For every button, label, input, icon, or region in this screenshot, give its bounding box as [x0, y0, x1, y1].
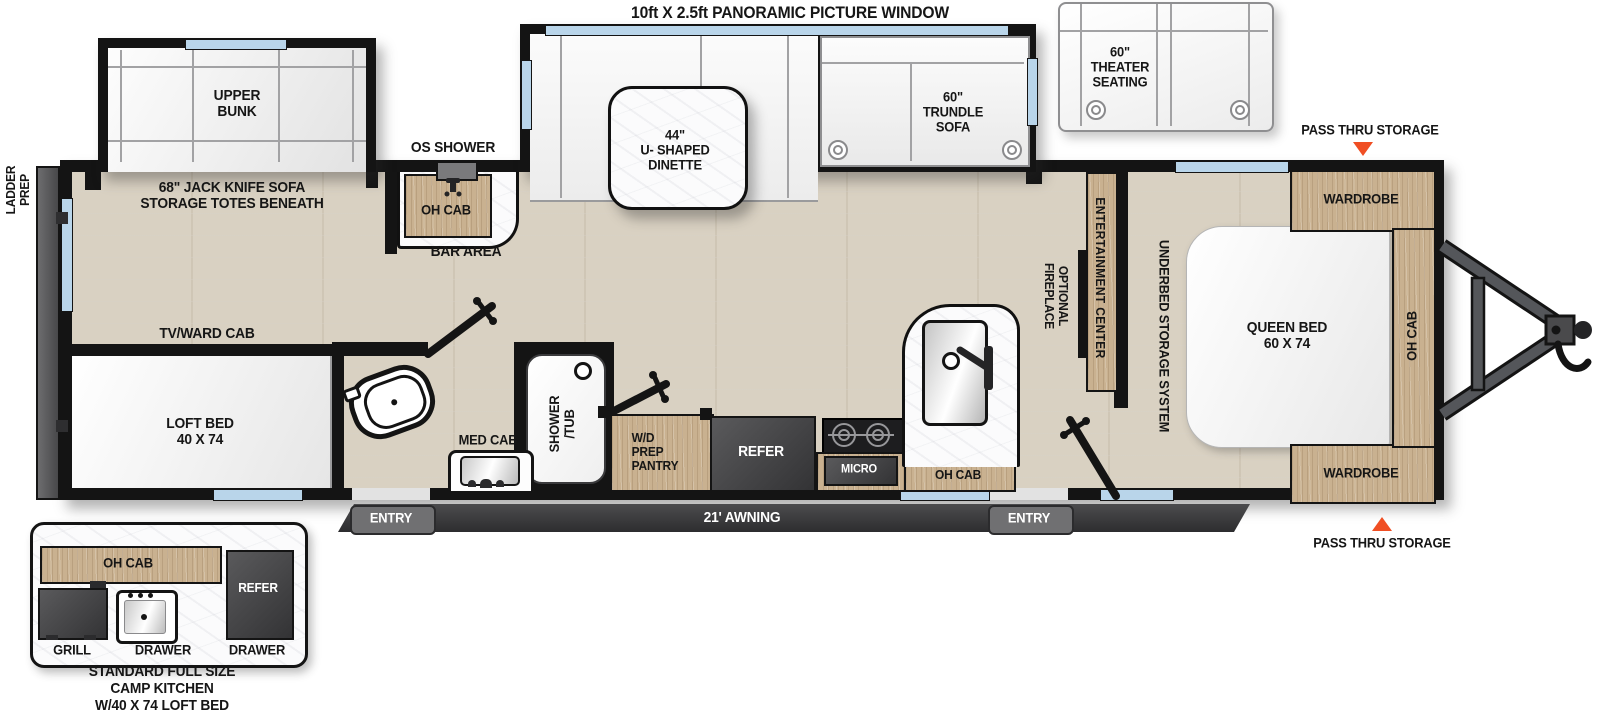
optional-fireplace-label: OPTIONAL FIREPLACE [1042, 263, 1070, 329]
camp-kitchen-oh-cab-label: OH CAB [103, 556, 153, 571]
bath-left-wall [330, 344, 344, 500]
pass-thru-top-label: PASS THRU STORAGE [1301, 123, 1438, 138]
hitch-icon [1442, 246, 1592, 414]
window-bunk-top [185, 39, 287, 50]
kitchen-sink-drain [942, 352, 960, 370]
window-bedroom-bottom [1100, 489, 1174, 501]
camp-kitchen-drawer1-label: DRAWER [135, 643, 191, 658]
shower-drain [574, 362, 592, 380]
loft-top-wall [72, 344, 334, 356]
trundle-grommet-left [828, 140, 848, 160]
trundle-grommet-right [1002, 140, 1022, 160]
theater-grommet-left [1086, 100, 1106, 120]
dinette-label: 44" U- SHAPED DINETTE [640, 128, 709, 173]
window-bedroom-top [1175, 161, 1289, 173]
trundle-sofa-label: 60" TRUNDLE SOFA [923, 90, 983, 135]
micro-label: MICRO [841, 463, 877, 476]
pass-thru-top-arrow-icon [1353, 142, 1373, 156]
wall-stub-2 [366, 172, 378, 188]
os-shower-label: OS SHOWER [411, 140, 495, 156]
bar-left-wall [385, 172, 397, 254]
kitchen-oh-cab-label: OH CAB [935, 468, 981, 482]
tv-ward-cab-label: TV/WARD CAB [159, 326, 254, 342]
window-slide-right [1027, 58, 1038, 126]
awning-label: 21' AWNING [704, 510, 781, 526]
upper-bunk-label: UPPER BUNK [214, 88, 261, 120]
bumper-bracket-top [56, 212, 68, 224]
entry-gap-left [352, 488, 430, 500]
bumper-bracket-bottom [56, 420, 68, 432]
theater-grommet-right [1230, 100, 1250, 120]
ladder-prep-label: LADDER PREP [4, 166, 32, 215]
entry-right-label: ENTRY [1008, 511, 1050, 526]
wardrobe-top-label: WARDROBE [1323, 192, 1398, 207]
window-loft-bottom [213, 489, 303, 501]
wardrobe-bottom-label: WARDROBE [1323, 466, 1398, 481]
wall-stub-3 [1026, 172, 1042, 184]
rv-floorplan: LADDER PREP UPPER BUNK 68" JACK KNIFE SO… [0, 0, 1600, 727]
wd-prep-pantry-label: W/D PREP PANTRY [632, 431, 679, 473]
camp-kitchen-refer-label: REFER [238, 581, 278, 595]
theater-seating-label: 60" THEATER SEATING [1091, 45, 1150, 90]
loft-bed-label: LOFT BED 40 X 74 [166, 416, 234, 448]
kitchen-sink [922, 320, 988, 426]
bedroom-oh-cab-label: OH CAB [1405, 311, 1420, 361]
camp-kitchen-grill [38, 588, 108, 640]
window-panoramic [545, 25, 1009, 36]
underbed-storage-label: UNDERBED STORAGE SYSTEM [1157, 240, 1172, 432]
os-shower-fixture [436, 161, 478, 181]
panoramic-window-title: 10ft X 2.5ft PANORAMIC PICTURE WINDOW [631, 4, 949, 22]
stove [822, 418, 904, 456]
bath-top-wall [332, 342, 428, 356]
shower-tub-label: SHOWER /TUB [547, 396, 577, 453]
camp-kitchen-caption: STANDARD FULL SIZE CAMP KITCHEN W/40 X 7… [89, 664, 235, 714]
med-cab-faucet [468, 480, 476, 487]
pass-thru-bottom-label: PASS THRU STORAGE [1313, 536, 1450, 551]
camp-kitchen-grill-label: GRILL [53, 643, 91, 658]
entry-left-label: ENTRY [370, 511, 412, 526]
bar-area-label: BAR AREA [431, 244, 502, 260]
entertainment-center-label: ENTERTAINMENT CENTER [1093, 197, 1107, 358]
pass-thru-bottom-arrow-icon [1372, 517, 1392, 531]
window-slide-left [521, 60, 532, 130]
bar-oh-cab-label: OH CAB [421, 203, 471, 218]
wall-stub-1 [85, 172, 101, 190]
med-cab-label: MED CAB [459, 433, 518, 448]
jack-knife-sofa-label: 68" JACK KNIFE SOFA STORAGE TOTES BENEAT… [140, 180, 323, 212]
refer-label: REFER [738, 444, 784, 460]
awning-bar [338, 504, 1250, 532]
optional-fireplace [1078, 250, 1086, 358]
camp-kitchen-drawer2-label: DRAWER [229, 643, 285, 658]
queen-bed-label: QUEEN BED 60 X 74 [1247, 320, 1327, 352]
